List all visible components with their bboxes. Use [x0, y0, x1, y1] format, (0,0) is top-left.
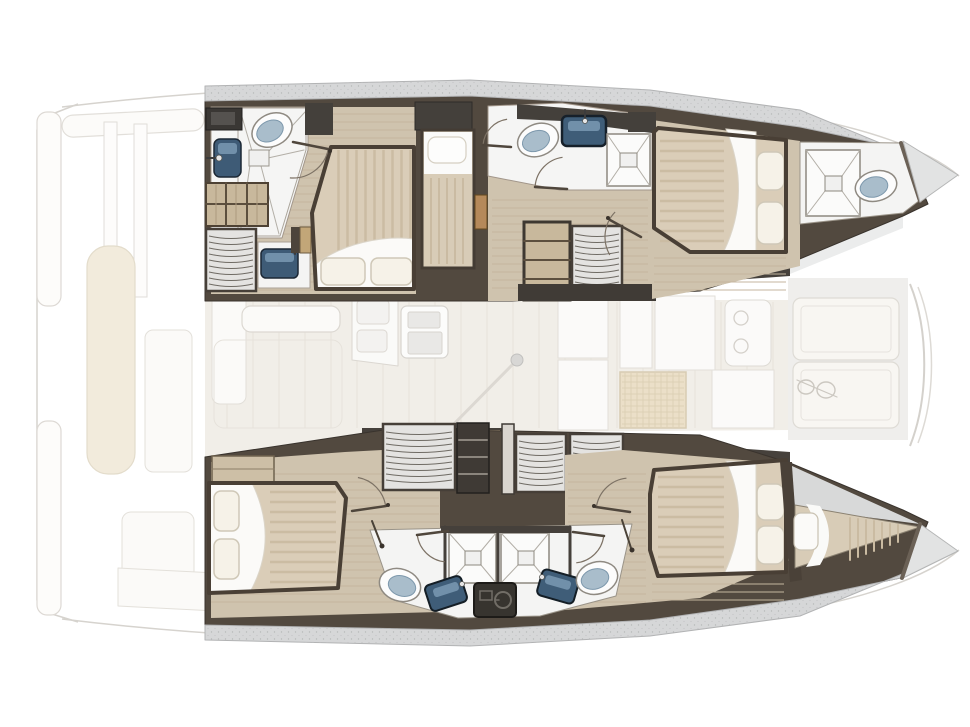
pillow-stbd-fwd-1 — [757, 484, 784, 520]
door-handle-stbd-aft — [386, 503, 390, 507]
galley-unit-c — [620, 296, 652, 368]
cockpit-canopy — [62, 108, 205, 137]
faucet-stbd-right — [540, 575, 545, 580]
catamaran-floorplan — [0, 0, 970, 727]
nightstand-port-aft-wood — [300, 227, 311, 253]
galley-unit-a — [558, 294, 608, 358]
crossbeam-curve-outer — [910, 284, 924, 446]
shower-port-bow — [806, 150, 860, 216]
wardrobe-stbd-mid — [516, 434, 566, 492]
mast-step-ball — [511, 354, 523, 366]
cabinet-over-berth — [415, 102, 472, 130]
transom-platform-port — [37, 112, 61, 306]
pillow-port-fwd-1 — [757, 152, 784, 190]
faucet-port-aft-head — [216, 155, 222, 161]
foredeck-lounge-aft — [793, 298, 899, 360]
door-handle-port-fwd — [606, 216, 610, 220]
port-aft-bath-counter-slot — [211, 112, 235, 125]
floorplan-svg — [0, 0, 970, 727]
helm-console — [145, 330, 192, 472]
saloon-unit-e — [712, 370, 774, 428]
door-stay-left-end — [380, 544, 385, 549]
galley-sink-basin-2 — [357, 330, 387, 352]
cockpit-lounge — [87, 246, 135, 474]
fridge-main-box — [408, 332, 442, 354]
fridge-freezer-box — [408, 312, 440, 328]
transom-platform-starboard — [37, 421, 61, 615]
faucet-stbd-left — [460, 582, 465, 587]
pillow-port-fwd-2 — [757, 202, 784, 244]
port-mid-aft-wall — [518, 284, 656, 301]
pillow-port-aft-2 — [371, 258, 412, 285]
door-handle-stbd-fwd — [592, 504, 596, 508]
port-aft-shower-drain — [249, 150, 269, 166]
wall-port-aft-bed — [305, 103, 333, 135]
locker-door-stbd — [502, 424, 514, 494]
galley-unit-b — [558, 360, 608, 430]
door-handle-port-aft — [328, 149, 332, 153]
saloon-table — [242, 306, 340, 332]
vanity-sink-port-aft-basin — [265, 253, 294, 262]
pillow-port-aft-1 — [321, 258, 365, 285]
wardrobe-port-mid — [572, 226, 622, 290]
pillow-stbd-aft-2 — [214, 539, 239, 579]
pillow-stbd-bow — [794, 513, 818, 550]
door-leaf-wood — [475, 195, 487, 229]
foredeck-lounge-fwd — [793, 362, 899, 428]
shower-wall-top — [441, 526, 571, 533]
faucet-port-mid-head — [583, 119, 588, 124]
pillow-stbd-aft-1 — [214, 491, 239, 531]
nightstand-port-aft-dark — [291, 227, 300, 253]
door-stay-right-end — [630, 548, 635, 553]
port-fwd-corner-wall — [628, 112, 656, 132]
pillow-berth-mid — [428, 137, 466, 163]
galley-sink-basin-1 — [357, 300, 389, 324]
galley-unit-d — [655, 296, 715, 370]
cooktop — [725, 300, 771, 366]
cockpit-post-fwd — [134, 124, 147, 297]
shower-port-mid — [607, 134, 650, 186]
pillow-stbd-fwd-2 — [757, 526, 784, 564]
saloon-sofa — [212, 292, 246, 404]
sink-port-aft-basin — [218, 143, 237, 154]
